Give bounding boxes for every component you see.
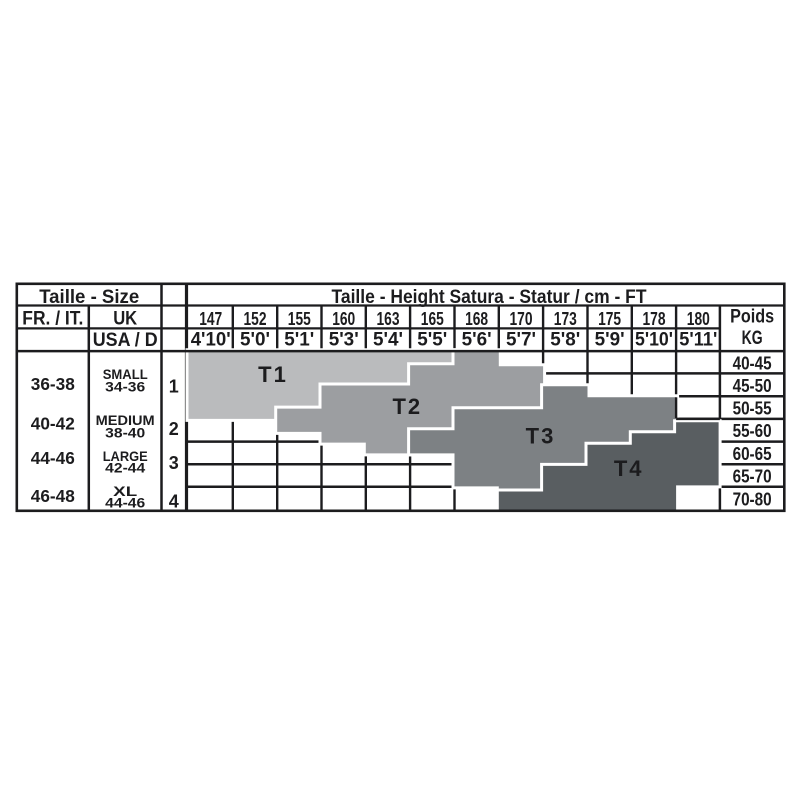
svg-text:5'6': 5'6'	[462, 329, 492, 350]
svg-text:40-42: 40-42	[31, 414, 75, 434]
svg-text:T1: T1	[258, 362, 288, 387]
svg-text:165: 165	[421, 308, 444, 329]
svg-text:5'5': 5'5'	[417, 329, 447, 350]
svg-text:160: 160	[332, 308, 355, 329]
svg-text:T2: T2	[392, 394, 422, 419]
svg-text:45-50: 45-50	[733, 376, 772, 396]
svg-text:173: 173	[554, 308, 577, 329]
svg-text:T4: T4	[614, 456, 644, 481]
svg-text:4'10': 4'10'	[191, 329, 231, 350]
svg-text:5'8': 5'8'	[550, 329, 580, 350]
svg-text:Taille - Size: Taille - Size	[39, 287, 139, 308]
svg-text:40-45: 40-45	[733, 353, 772, 373]
svg-text:Taille - Height Satura - Statu: Taille - Height Satura - Statur / cm - F…	[332, 287, 647, 308]
svg-text:163: 163	[377, 308, 400, 329]
svg-text:36-38: 36-38	[31, 374, 75, 394]
svg-text:KG: KG	[742, 328, 763, 349]
svg-text:180: 180	[687, 308, 710, 329]
svg-text:34-36: 34-36	[105, 378, 145, 394]
svg-text:USA / D: USA / D	[93, 330, 158, 351]
svg-text:1: 1	[169, 377, 179, 397]
svg-text:5'4': 5'4'	[373, 329, 403, 350]
svg-text:4: 4	[169, 492, 179, 512]
svg-text:50-55: 50-55	[733, 399, 772, 419]
svg-text:147: 147	[199, 308, 222, 329]
svg-text:5'1': 5'1'	[284, 329, 314, 350]
svg-text:42-44: 42-44	[105, 460, 145, 476]
svg-text:2: 2	[169, 419, 179, 439]
svg-text:44-46: 44-46	[105, 495, 145, 511]
svg-text:155: 155	[288, 308, 311, 329]
svg-text:65-70: 65-70	[733, 467, 772, 487]
svg-text:Poids: Poids	[730, 307, 774, 328]
svg-text:70-80: 70-80	[733, 489, 772, 509]
svg-text:46-48: 46-48	[31, 486, 75, 506]
svg-text:38-40: 38-40	[105, 425, 145, 441]
svg-text:152: 152	[244, 308, 267, 329]
svg-text:5'11': 5'11'	[679, 329, 717, 350]
svg-text:5'0': 5'0'	[240, 329, 270, 350]
svg-text:178: 178	[643, 308, 666, 329]
svg-text:55-60: 55-60	[733, 421, 772, 441]
svg-text:5'7': 5'7'	[506, 329, 536, 350]
svg-text:60-65: 60-65	[733, 444, 772, 464]
svg-text:170: 170	[510, 308, 533, 329]
svg-text:5'9': 5'9'	[595, 329, 625, 350]
svg-text:5'10': 5'10'	[635, 329, 673, 350]
svg-text:5'3': 5'3'	[329, 329, 359, 350]
svg-text:T3: T3	[526, 424, 556, 449]
svg-text:168: 168	[465, 308, 488, 329]
svg-text:UK: UK	[113, 309, 137, 330]
svg-text:175: 175	[598, 308, 621, 329]
svg-text:FR. / IT.: FR. / IT.	[22, 309, 83, 330]
svg-text:44-46: 44-46	[31, 448, 75, 468]
svg-text:3: 3	[169, 453, 179, 473]
